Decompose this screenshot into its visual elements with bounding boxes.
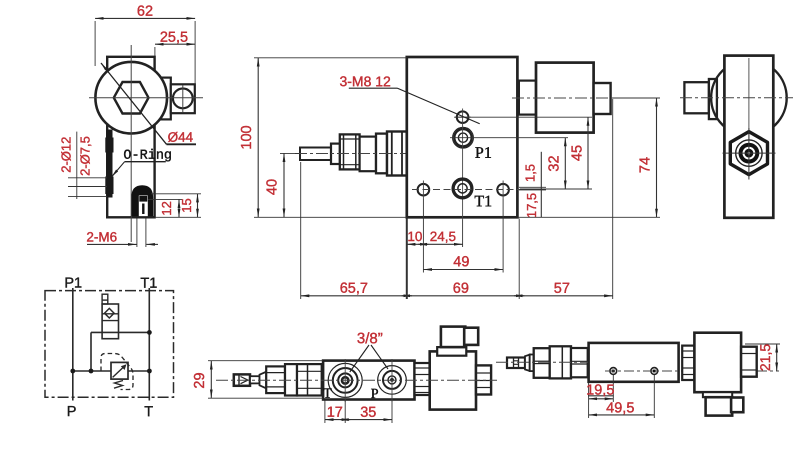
svg-text:40: 40	[265, 179, 281, 195]
svg-text:3/8”: 3/8”	[357, 330, 383, 347]
svg-text:62: 62	[137, 4, 153, 20]
svg-text:17: 17	[327, 405, 343, 421]
svg-text:T: T	[323, 387, 332, 402]
svg-text:49: 49	[453, 254, 469, 270]
svg-text:25,5: 25,5	[160, 30, 188, 46]
svg-text:12: 12	[159, 201, 174, 215]
svg-text:P: P	[67, 404, 77, 420]
svg-text:17,5: 17,5	[524, 193, 539, 218]
svg-text:69: 69	[453, 281, 469, 297]
svg-text:P1: P1	[475, 145, 492, 162]
svg-text:P: P	[371, 387, 379, 402]
svg-text:3-M8 12: 3-M8 12	[339, 73, 391, 89]
svg-text:1,5: 1,5	[523, 164, 538, 182]
svg-text:49,5: 49,5	[606, 400, 634, 416]
svg-text:65,7: 65,7	[340, 281, 368, 297]
svg-text:35: 35	[360, 405, 376, 421]
svg-text:45: 45	[570, 145, 586, 161]
svg-text:24,5: 24,5	[430, 229, 456, 244]
svg-text:T: T	[144, 404, 153, 420]
svg-text:100: 100	[239, 125, 255, 149]
svg-text:Ø44: Ø44	[168, 130, 194, 145]
svg-text:32: 32	[547, 155, 563, 171]
svg-text:2-M6: 2-M6	[86, 230, 117, 245]
svg-text:2-Ø7,5: 2-Ø7,5	[78, 136, 93, 176]
svg-text:10: 10	[407, 229, 422, 244]
svg-text:29: 29	[192, 372, 208, 388]
svg-text:T1: T1	[474, 193, 492, 210]
svg-text:74: 74	[638, 157, 654, 173]
svg-text:15: 15	[179, 198, 194, 212]
svg-text:19,5: 19,5	[586, 383, 614, 399]
svg-text:57: 57	[554, 281, 570, 297]
svg-text:2-Ø12: 2-Ø12	[59, 137, 74, 173]
svg-text:21,5: 21,5	[757, 344, 773, 371]
